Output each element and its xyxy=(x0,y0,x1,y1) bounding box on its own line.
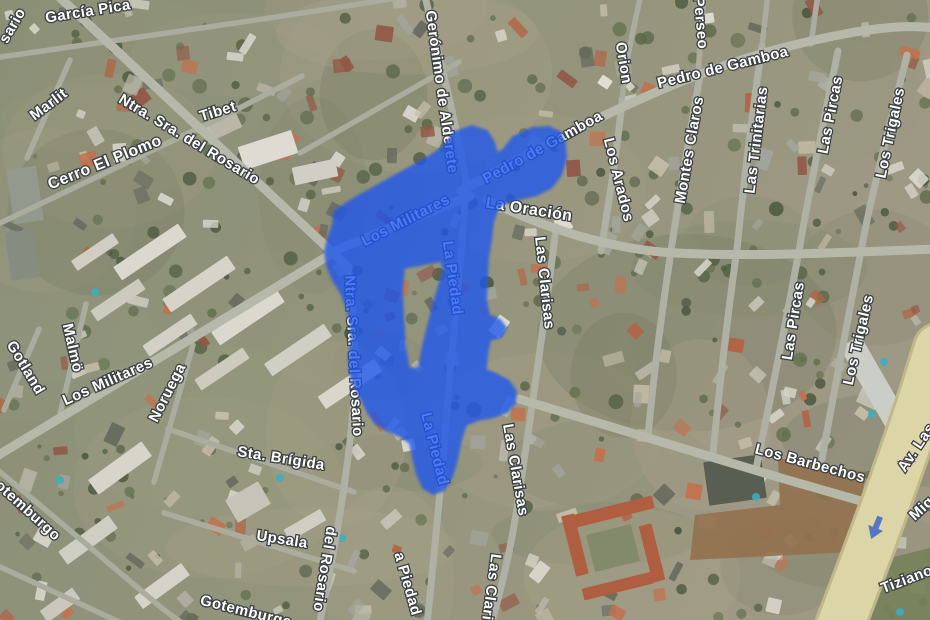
map-viewport[interactable]: sarioGarcía PicaMarlitTibetNtra. Sra. de… xyxy=(0,0,930,620)
satellite-map[interactable]: sarioGarcía PicaMarlitTibetNtra. Sra. de… xyxy=(0,0,930,620)
